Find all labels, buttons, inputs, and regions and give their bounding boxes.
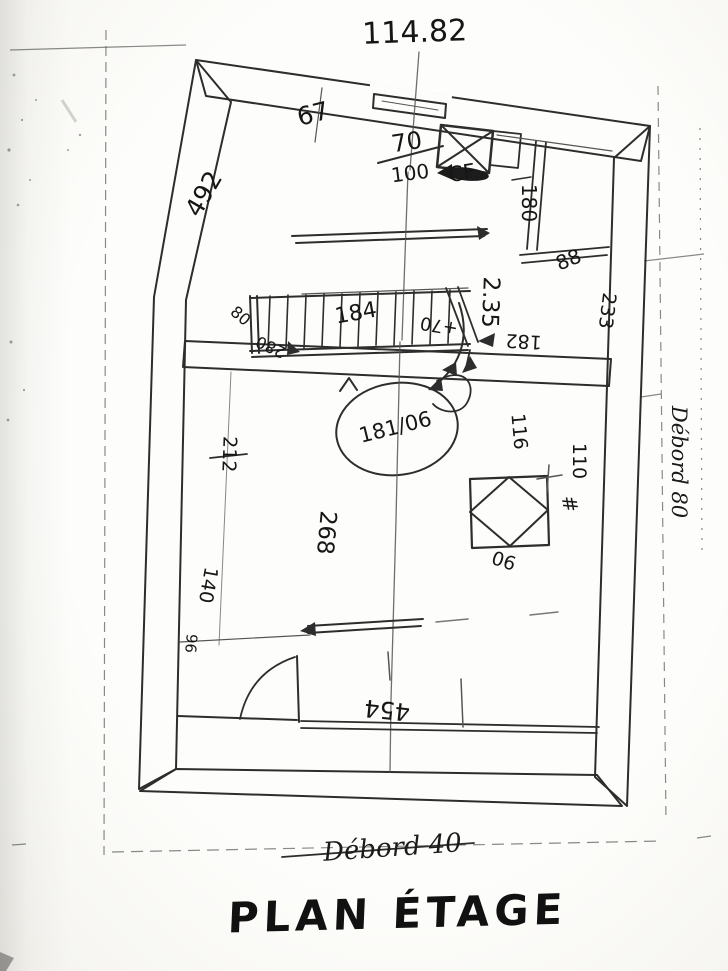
stair-arrow xyxy=(462,356,477,373)
window xyxy=(367,84,452,126)
flue-label: CF xyxy=(447,159,477,187)
dim-268-label: 268 xyxy=(311,510,341,556)
dim-67-label: 67 xyxy=(294,96,332,132)
dim-88-label: 88 xyxy=(552,244,585,276)
arrowhead xyxy=(442,362,457,376)
height-label: 2.35 xyxy=(476,276,504,328)
wall-bottom xyxy=(140,769,622,806)
dim-70-label: 70 xyxy=(389,126,424,158)
floor-plan-sketch: 114.82 67 70 100 CF 180 88 492 80 280 18… xyxy=(0,0,728,971)
dim-140-label: 140 xyxy=(194,565,222,605)
lower-dimension-marks xyxy=(180,612,558,642)
dim-116-label: 116 xyxy=(506,412,531,450)
dim-492-label: 492 xyxy=(179,166,228,222)
bottom-note-label: Débord 40 xyxy=(321,828,463,868)
dim-280-arrow xyxy=(287,341,300,355)
caret-mark xyxy=(340,378,357,391)
hash-mark-label: # xyxy=(557,493,584,514)
dim-180-label: 180 xyxy=(517,184,541,222)
circled-note-label: 181/06 xyxy=(357,407,435,448)
scan-noise xyxy=(0,74,81,971)
skylight-width-label: 110 xyxy=(568,443,590,479)
dim-184-label: 184 xyxy=(333,298,379,330)
skylight xyxy=(470,465,562,548)
arrowhead xyxy=(477,226,490,240)
wall-left xyxy=(139,60,231,789)
plan-drawing: 114.82 67 70 100 CF 180 88 492 80 280 18… xyxy=(0,0,728,971)
right-note-label: Débord 80 xyxy=(667,405,691,518)
door-leaf xyxy=(297,656,299,722)
dim-454-leader xyxy=(388,652,390,680)
dim-233-label: 233 xyxy=(594,291,620,330)
skylight-height-label: 90 xyxy=(489,546,519,574)
dim-182-arrow xyxy=(478,333,495,347)
dim-182-label: 182 xyxy=(505,329,542,353)
upper-dimension-line xyxy=(292,226,490,243)
dim-100-label: 100 xyxy=(390,159,431,187)
rise-label: +70 xyxy=(419,312,460,339)
wall-right xyxy=(595,126,650,806)
elevation-label: 114.82 xyxy=(362,13,468,52)
wall-middle xyxy=(183,341,611,386)
dim-96-label: 96 xyxy=(181,633,201,654)
door-swing xyxy=(240,657,295,719)
plan-title: PLAN ÉTAGE xyxy=(227,884,569,943)
dim-454-label: 454 xyxy=(363,694,411,727)
dim-212-label: 212 xyxy=(217,436,240,473)
